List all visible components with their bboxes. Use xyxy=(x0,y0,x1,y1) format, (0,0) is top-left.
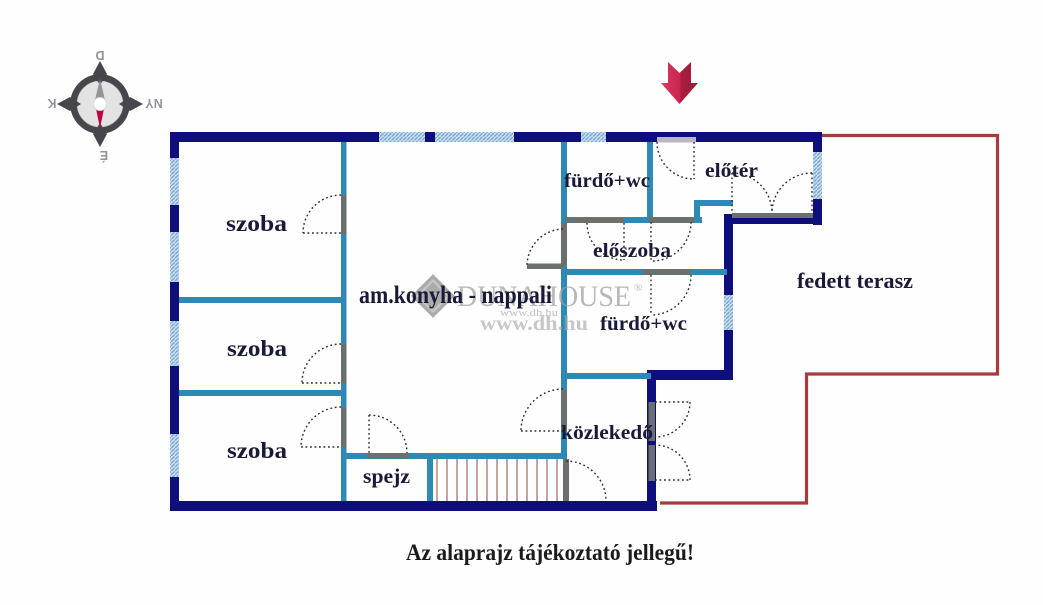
svg-text:fürdő+wc: fürdő+wc xyxy=(564,170,650,192)
svg-text:előszoba: előszoba xyxy=(593,240,671,262)
svg-text:szoba: szoba xyxy=(226,211,288,236)
svg-text:NY: NY xyxy=(145,96,163,110)
svg-text:D: D xyxy=(95,48,104,62)
svg-text:É: É xyxy=(100,148,108,163)
svg-text:am.konyha - nappali: am.konyha - nappali xyxy=(359,282,552,309)
svg-text:előtér: előtér xyxy=(705,160,758,182)
svg-text:K: K xyxy=(47,96,56,110)
svg-text:Az alaprajz tájékoztató jelleg: Az alaprajz tájékoztató jellegű! xyxy=(406,540,694,565)
svg-text:fürdő+wc: fürdő+wc xyxy=(600,313,687,335)
svg-text:szoba: szoba xyxy=(227,438,288,463)
svg-text:szoba: szoba xyxy=(227,336,288,361)
svg-text:fedett terasz: fedett terasz xyxy=(797,268,913,293)
svg-text:közlekedő: közlekedő xyxy=(561,422,653,444)
svg-text:spejz: spejz xyxy=(363,464,410,488)
svg-text:www.dh.hu: www.dh.hu xyxy=(480,311,588,335)
svg-text:®: ® xyxy=(634,282,642,294)
